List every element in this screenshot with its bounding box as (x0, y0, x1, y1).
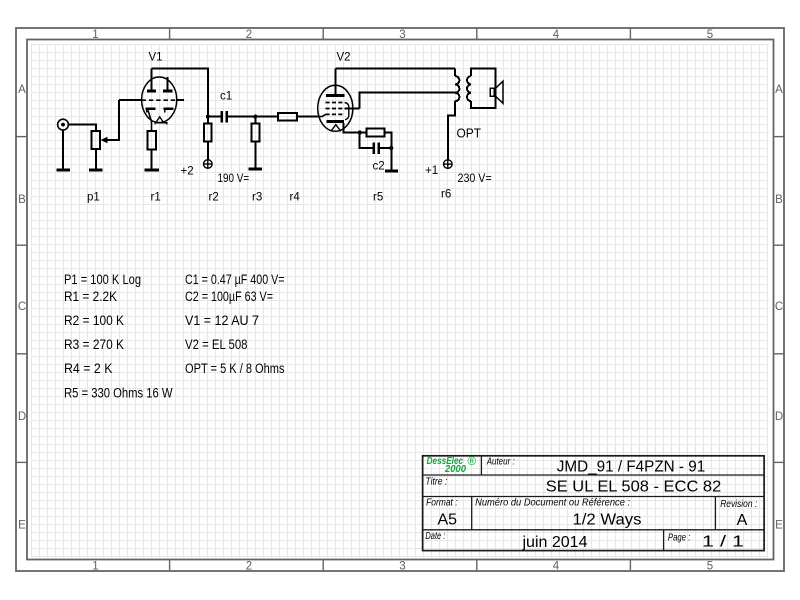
svg-text:R3 = 270 K: R3 = 270 K (64, 337, 124, 352)
svg-text:SE UL EL 508 - ECC 82: SE UL EL 508 - ECC 82 (546, 478, 722, 495)
svg-text:B: B (775, 194, 783, 206)
svg-text:c2: c2 (373, 161, 385, 173)
svg-text:Titre :: Titre : (425, 476, 447, 487)
svg-text:B: B (18, 194, 26, 206)
svg-text:230 V=: 230 V= (458, 173, 492, 185)
svg-text:R5 = 330 Ohms 16 W: R5 = 330 Ohms 16 W (64, 386, 173, 401)
svg-text:C1 = 0.47 µF 400 V=: C1 = 0.47 µF 400 V= (185, 272, 285, 287)
svg-text:Page :: Page : (668, 532, 691, 543)
svg-text:1: 1 (92, 29, 98, 41)
svg-text:3: 3 (399, 561, 405, 573)
svg-text:C2 = 100µF 63 V=: C2 = 100µF 63 V= (185, 289, 273, 304)
svg-text:®: ® (468, 456, 477, 468)
svg-text:2: 2 (246, 29, 252, 41)
svg-text:C: C (775, 301, 783, 313)
svg-text:R4 = 2 K: R4 = 2 K (64, 361, 113, 376)
svg-text:E: E (18, 520, 26, 532)
svg-text:3: 3 (399, 29, 405, 41)
svg-text:OPT: OPT (457, 127, 482, 141)
svg-text:4: 4 (553, 561, 560, 573)
svg-text:V1: V1 (149, 52, 163, 64)
svg-text:5: 5 (707, 29, 713, 41)
svg-text:r3: r3 (252, 192, 262, 204)
svg-text:Auteur :: Auteur : (486, 457, 515, 468)
svg-text:p1: p1 (87, 192, 100, 204)
svg-text:R1 = 2.2K: R1 = 2.2K (64, 289, 117, 304)
svg-text:V2 = EL 508: V2 = EL 508 (185, 337, 248, 352)
svg-text:c1: c1 (220, 91, 232, 103)
svg-text:R2 = 100 K: R2 = 100 K (64, 313, 124, 328)
svg-text:E: E (775, 520, 783, 532)
svg-text:+2: +2 (181, 166, 194, 178)
svg-text:r2: r2 (209, 192, 219, 204)
svg-text:1/2 Ways: 1/2 Ways (573, 511, 642, 528)
svg-text:A: A (18, 84, 26, 96)
svg-text:Date :: Date : (425, 531, 445, 542)
svg-text:A: A (737, 512, 748, 529)
svg-text:r1: r1 (151, 192, 161, 204)
svg-text:V2: V2 (337, 52, 351, 64)
svg-text:r4: r4 (290, 192, 301, 204)
svg-text:r6: r6 (441, 189, 451, 201)
svg-text:V1 = 12 AU 7: V1 = 12 AU 7 (185, 313, 259, 328)
svg-text:5: 5 (707, 561, 713, 573)
svg-text:D: D (18, 411, 26, 423)
svg-text:2: 2 (246, 561, 252, 573)
svg-text:D: D (775, 411, 783, 423)
svg-text:+1: +1 (425, 165, 438, 177)
svg-text:P1 = 100 K Log: P1 = 100 K Log (64, 272, 141, 287)
svg-text:Format :: Format : (426, 498, 458, 509)
svg-text:C: C (18, 301, 26, 313)
svg-text:juin 2014: juin 2014 (521, 534, 587, 551)
svg-text:Revision :: Revision : (720, 499, 757, 510)
svg-text:JMD_91 / F4PZN - 91: JMD_91 / F4PZN - 91 (557, 459, 706, 476)
svg-text:Numéro du Document ou Référenc: Numéro du Document ou Référence : (475, 498, 630, 509)
svg-text:r5: r5 (373, 192, 383, 204)
svg-text:2000: 2000 (444, 464, 466, 475)
svg-text:A5: A5 (438, 511, 458, 528)
svg-text:1: 1 (92, 561, 98, 573)
svg-text:190 V=: 190 V= (218, 173, 250, 185)
svg-text:A: A (775, 84, 783, 96)
svg-text:1 / 1: 1 / 1 (702, 534, 744, 551)
svg-text:OPT = 5 K / 8 Ohms: OPT = 5 K / 8 Ohms (185, 361, 285, 376)
svg-text:4: 4 (553, 29, 560, 41)
